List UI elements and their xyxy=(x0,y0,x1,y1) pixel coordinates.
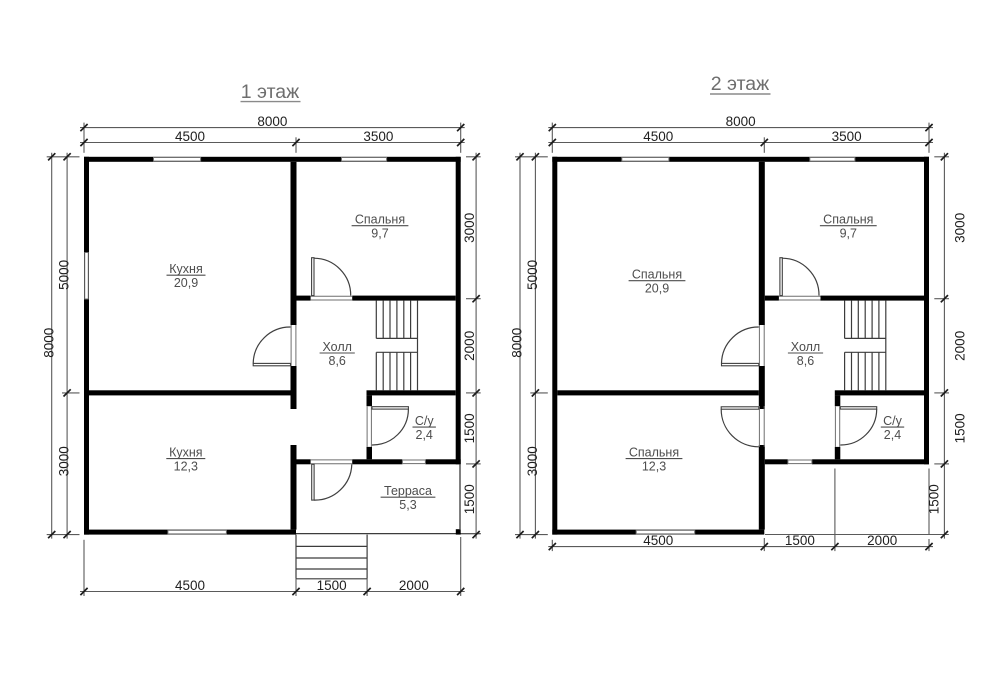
svg-text:8,6: 8,6 xyxy=(797,354,814,368)
svg-text:1500: 1500 xyxy=(462,413,477,443)
svg-text:2000: 2000 xyxy=(952,331,967,361)
svg-text:2 этаж: 2 этаж xyxy=(711,73,769,95)
svg-text:5000: 5000 xyxy=(57,260,72,290)
svg-text:Спальня: Спальня xyxy=(823,213,873,227)
svg-text:С/у: С/у xyxy=(415,414,435,428)
svg-text:4500: 4500 xyxy=(175,578,205,593)
svg-text:Кухня: Кухня xyxy=(169,445,202,459)
svg-text:2,4: 2,4 xyxy=(884,428,901,442)
svg-text:3500: 3500 xyxy=(832,129,862,144)
svg-text:Кухня: Кухня xyxy=(169,262,202,276)
svg-text:4500: 4500 xyxy=(643,129,673,144)
svg-text:4500: 4500 xyxy=(643,533,673,548)
svg-text:С/у: С/у xyxy=(883,414,903,428)
svg-text:3000: 3000 xyxy=(57,446,72,476)
svg-text:3000: 3000 xyxy=(462,213,477,243)
svg-text:Холл: Холл xyxy=(791,340,820,354)
svg-text:3000: 3000 xyxy=(952,213,967,243)
svg-text:8000: 8000 xyxy=(41,328,56,358)
svg-text:Терраса: Терраса xyxy=(384,484,432,498)
svg-text:4500: 4500 xyxy=(175,129,205,144)
svg-text:12,3: 12,3 xyxy=(642,460,666,474)
svg-text:2000: 2000 xyxy=(867,533,897,548)
svg-text:1500: 1500 xyxy=(926,484,941,514)
svg-text:20,9: 20,9 xyxy=(645,282,669,296)
svg-text:2000: 2000 xyxy=(399,578,429,593)
svg-text:Спальня: Спальня xyxy=(629,445,679,459)
svg-text:2000: 2000 xyxy=(462,331,477,361)
svg-text:Спальня: Спальня xyxy=(632,268,682,282)
svg-text:2,4: 2,4 xyxy=(416,428,433,442)
svg-text:8,6: 8,6 xyxy=(329,354,346,368)
svg-text:9,7: 9,7 xyxy=(371,227,388,241)
svg-text:9,7: 9,7 xyxy=(840,227,857,241)
svg-text:1500: 1500 xyxy=(952,413,967,443)
svg-text:12,3: 12,3 xyxy=(174,460,198,474)
svg-text:Спальня: Спальня xyxy=(355,213,405,227)
svg-text:1500: 1500 xyxy=(462,484,477,514)
svg-text:1500: 1500 xyxy=(317,578,347,593)
svg-text:1 этаж: 1 этаж xyxy=(241,81,299,103)
svg-text:5000: 5000 xyxy=(525,260,540,290)
svg-text:8000: 8000 xyxy=(510,328,525,358)
svg-text:5,3: 5,3 xyxy=(399,498,416,512)
svg-text:8000: 8000 xyxy=(726,114,756,129)
svg-text:Холл: Холл xyxy=(322,340,351,354)
svg-text:3500: 3500 xyxy=(363,129,393,144)
svg-text:1500: 1500 xyxy=(785,533,815,548)
svg-text:20,9: 20,9 xyxy=(174,276,198,290)
svg-text:3000: 3000 xyxy=(525,446,540,476)
svg-text:8000: 8000 xyxy=(257,114,287,129)
